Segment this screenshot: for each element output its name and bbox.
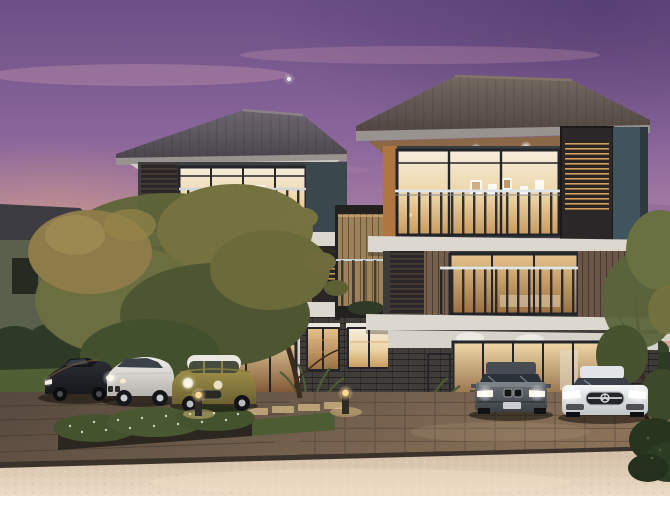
balcony-railing-2f-right: [440, 268, 588, 314]
balcony-railing-3f-right: [395, 191, 562, 235]
rendering-canvas: [0, 0, 670, 505]
slat-screen-3f-right: [561, 127, 613, 253]
headlight: [214, 381, 223, 390]
bush-right-foreground: [628, 418, 670, 482]
dusk-townhouse-rendering: [0, 0, 670, 505]
bottom-border: [0, 496, 670, 505]
moon: [283, 73, 295, 85]
louver-2f: [390, 251, 424, 318]
